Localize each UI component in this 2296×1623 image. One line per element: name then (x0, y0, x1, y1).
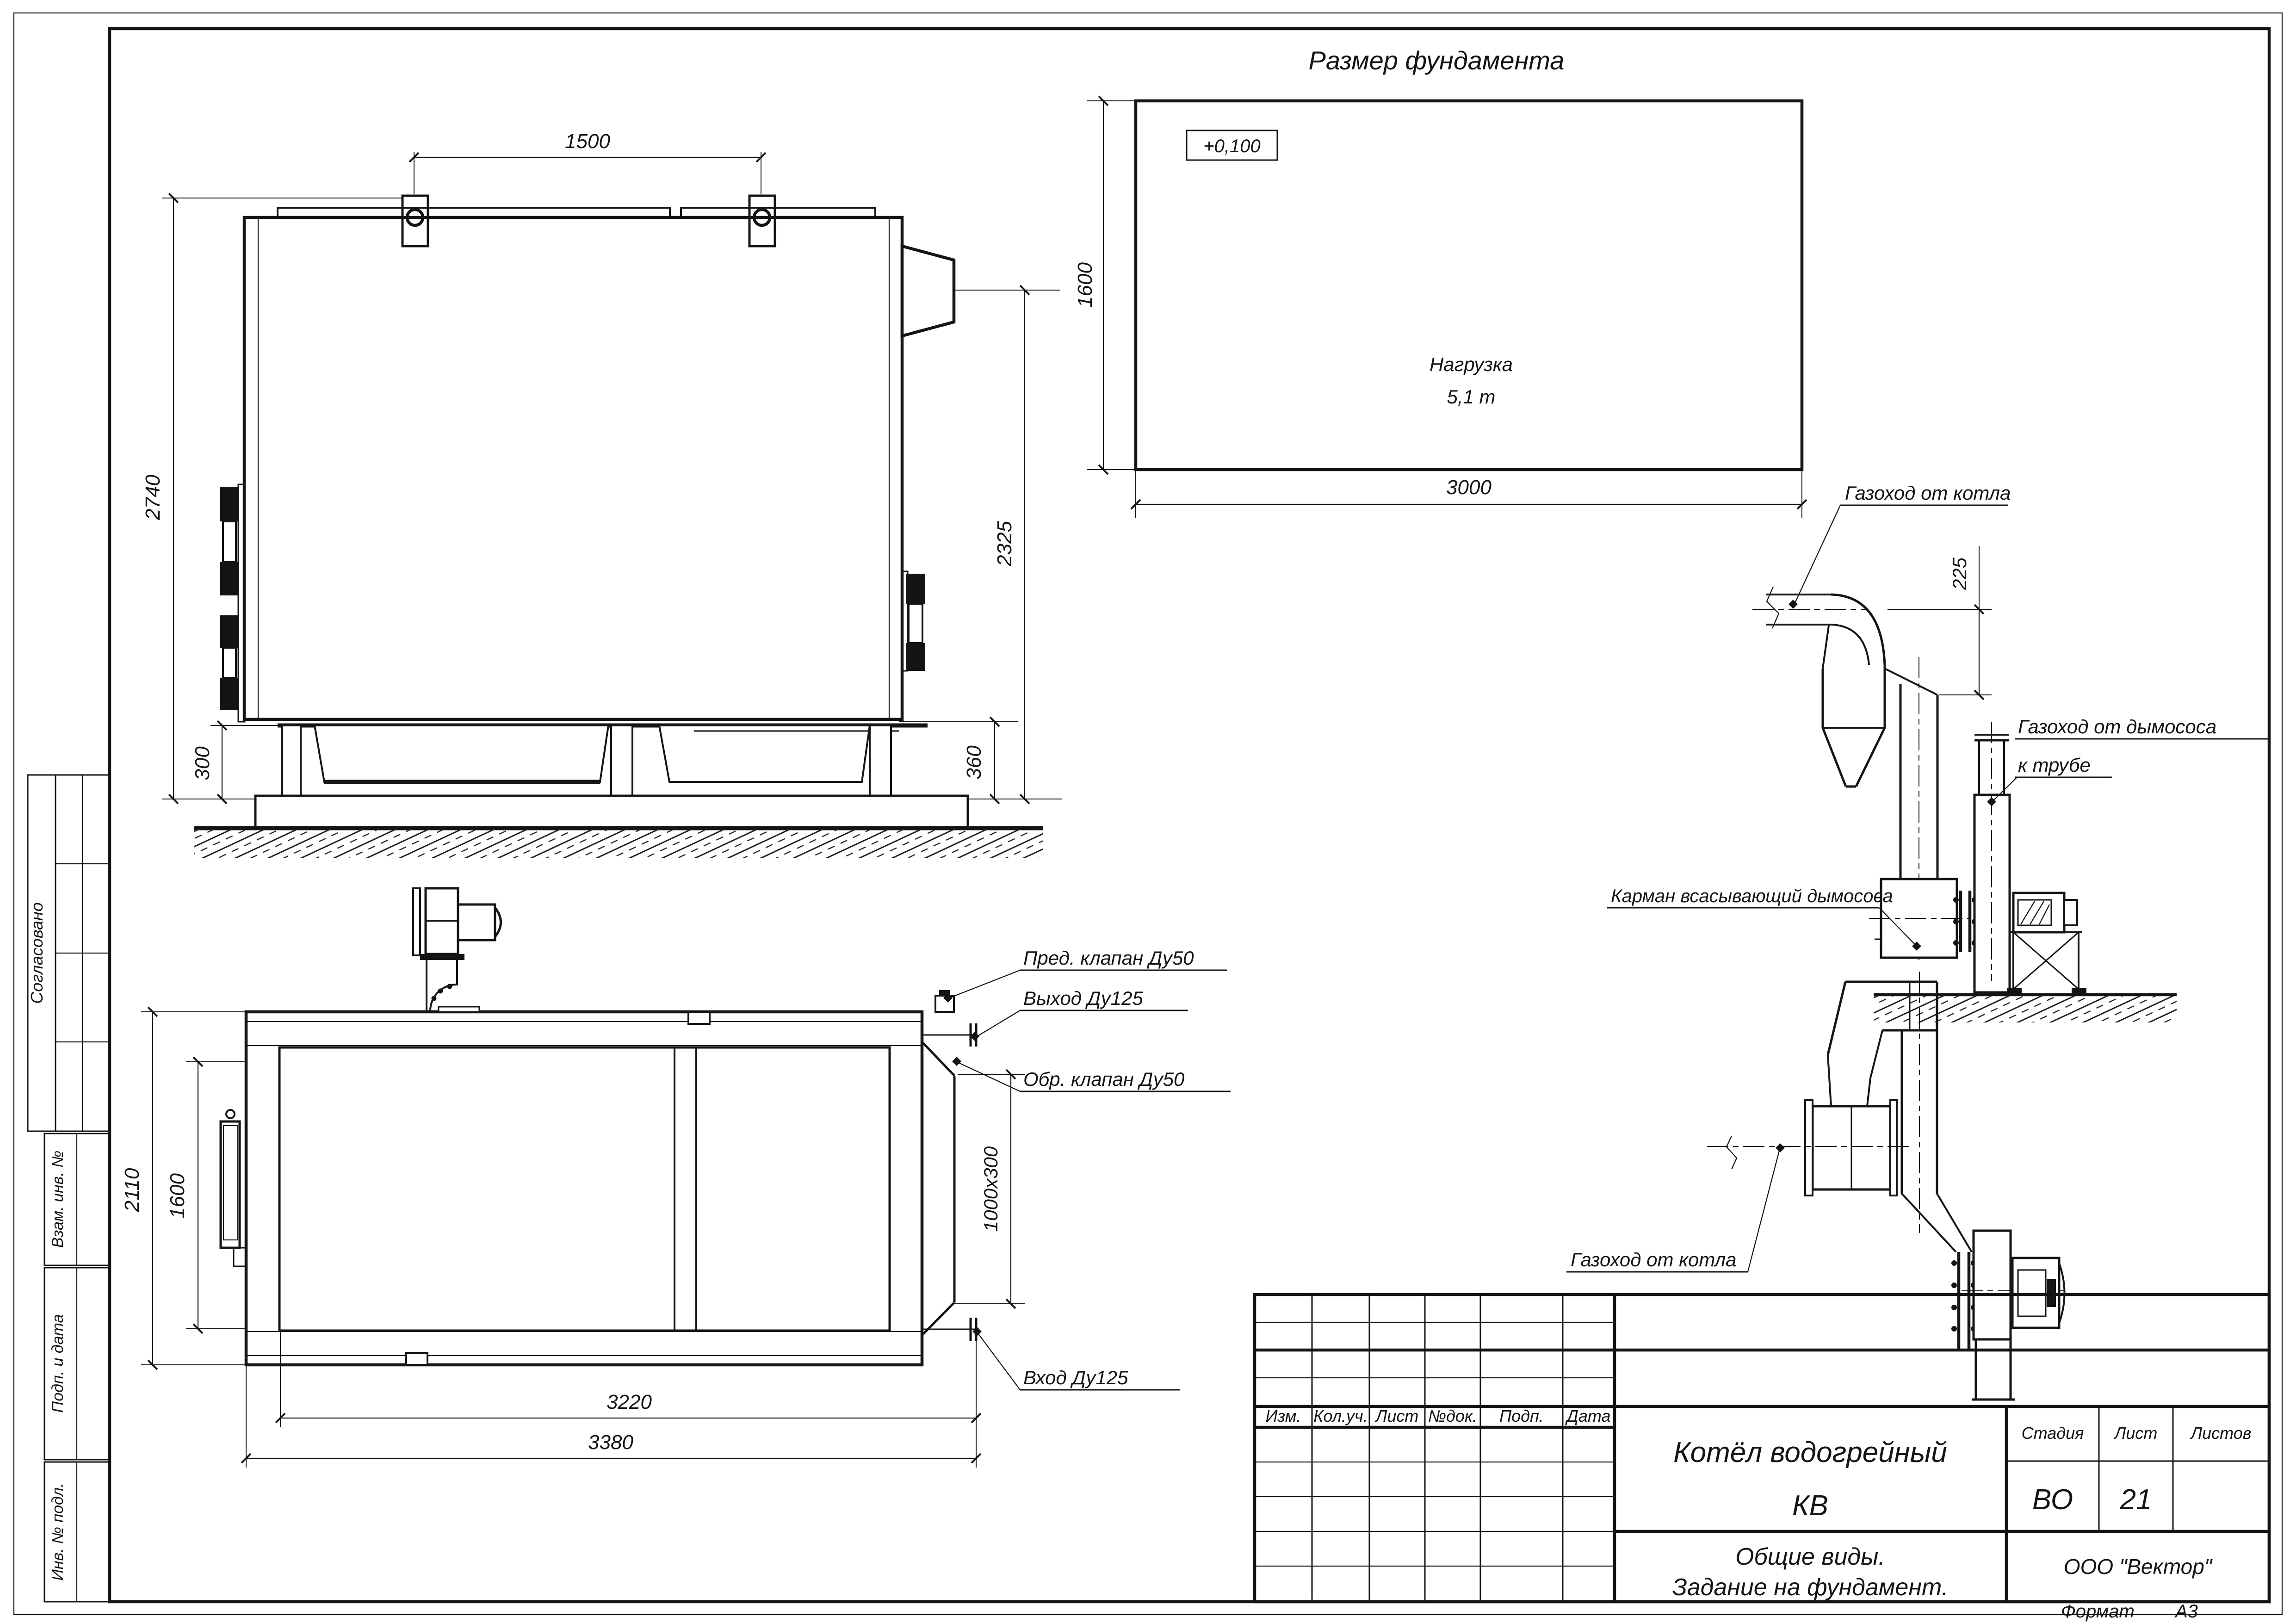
rear-flange (902, 571, 925, 671)
gas-duct-plan: Газоход от котла (1566, 972, 2070, 1406)
plan-dim-length-inner: 3220 (606, 1391, 652, 1413)
foundation-dim-height: 1600 (1074, 262, 1096, 308)
plan-dim-duct: 1000х300 (980, 1146, 1002, 1232)
front-flange-plan (221, 1110, 246, 1266)
rev-header-izm: Изм. (1266, 1406, 1301, 1425)
flue-outlet (902, 246, 954, 336)
plan-dim-width-total: 2110 (121, 1168, 143, 1212)
plan-outline (246, 1012, 922, 1365)
stamp-replace-inv-label: Взам. инв. № (49, 1151, 67, 1248)
side-dim-frame-left: 300 (191, 746, 214, 781)
side-dim-flue: 2325 (993, 521, 1016, 567)
load-value: 5,1 т (1447, 386, 1495, 408)
callout-inlet: Вход Ду125 (972, 1327, 1180, 1390)
lifting-lug (402, 196, 428, 246)
stage-label: Стадия (2022, 1424, 2084, 1443)
load-label: Нагрузка (1430, 353, 1513, 375)
rev-header-list: Лист (1375, 1406, 1419, 1425)
svg-text:к трубе: к трубе (2018, 754, 2091, 776)
sheets-label: Листов (2190, 1424, 2251, 1443)
svg-text:Обр. клапан Ду50: Обр. клапан Ду50 (1023, 1068, 1185, 1090)
callout-outlet: Выход Ду125 (970, 987, 1188, 1041)
elevation-mark: +0,100 (1203, 136, 1260, 156)
format-label: Формат (2061, 1601, 2135, 1622)
side-dim-height: 2740 (142, 475, 164, 520)
foundation-title: Размер фундамента (1309, 46, 1565, 75)
smoke-fan-plan (413, 888, 501, 1012)
cyclone (1823, 595, 1885, 787)
side-dim-lugs: 1500 (565, 130, 610, 153)
svg-text:Газоход от дымососа: Газоход от дымососа (2018, 716, 2216, 737)
callout-to-stack: Газоход от дымососа к трубе (1987, 716, 2271, 806)
drawing-sheet: Формат А3 Согласовано Взам. инв. № Подп.… (0, 0, 2296, 1623)
front-flanges (220, 484, 245, 722)
company: ООО "Вектор" (2064, 1555, 2213, 1579)
smoke-fan-plan-detail (1951, 1231, 2070, 1406)
svg-text:Пред. клапан Ду50: Пред. клапан Ду50 (1023, 947, 1194, 969)
stamp-sign-date-label: Подп. и дата (49, 1314, 67, 1413)
svg-text:Выход Ду125: Выход Ду125 (1023, 987, 1143, 1009)
callout-flue-from-boiler-plan: Газоход от котла (1566, 1143, 1785, 1272)
rev-header-podp: Подп. (1499, 1406, 1544, 1425)
title-block: Изм. Кол.уч. Лист №док. Подп. Дата Стади… (1255, 1295, 2269, 1602)
stamp-inv-orig: Инв. № подл. (44, 1462, 110, 1602)
foundation-plan: Размер фундамента +0,100 Нагрузка 5,1 т … (1074, 46, 1802, 518)
duct-dim-offset: 225 (1949, 557, 1970, 590)
doc-name-line1: Котёл водогрейный (1673, 1437, 1947, 1468)
support-frame (255, 725, 968, 828)
plan-dim-width-inner: 1600 (166, 1173, 189, 1219)
boiler-side-view: 1500 (142, 130, 1062, 858)
format-value: А3 (2174, 1601, 2198, 1622)
gas-duct-elevation: Газоход от котла 225 Карман всасывающий … (1607, 482, 2271, 1022)
stage-value: ВО (2032, 1484, 2073, 1516)
svg-text:Газоход от котла: Газоход от котла (1571, 1249, 1736, 1270)
stamp-approved: Согласовано (27, 775, 110, 1131)
doc-type-line1: Общие виды. (1735, 1543, 1885, 1570)
svg-text:Вход Ду125: Вход Ду125 (1023, 1367, 1128, 1388)
plan-dim-length-total: 3380 (588, 1431, 633, 1454)
rev-header-doc: №док. (1428, 1406, 1477, 1425)
margin-stamps: Согласовано Взам. инв. № Подп. и дата Ин… (27, 775, 110, 1602)
svg-text:Газоход от котла: Газоход от котла (1845, 482, 2011, 504)
ground (194, 828, 1043, 858)
side-dim-frame-right: 360 (963, 745, 985, 780)
foundation-dim-width: 3000 (1446, 476, 1491, 499)
rev-header-data: Дата (1565, 1406, 1611, 1425)
doc-name-line2: КВ (1792, 1490, 1828, 1522)
stamp-sign-date: Подп. и дата (44, 1268, 110, 1460)
sheet-value: 21 (2120, 1484, 2152, 1516)
stamp-inv-orig-label: Инв. № подл. (49, 1483, 67, 1581)
doc-type-line2: Задание на фундамент. (1672, 1574, 1948, 1601)
lifting-lug (749, 196, 775, 246)
callout-flue-from-boiler: Газоход от котла (1789, 482, 2011, 609)
boiler-body (244, 217, 902, 719)
flue-cylinder-plan (1707, 1100, 1911, 1196)
sheet-label: Лист (2114, 1424, 2158, 1443)
plan-fittings (922, 990, 977, 1341)
stamp-approved-label: Согласовано (27, 902, 46, 1004)
stamp-replace-inv: Взам. инв. № (44, 1134, 110, 1265)
rev-header-koluch: Кол.уч. (1313, 1406, 1368, 1425)
boiler-plan-view: 1000х300 Пред. клапан Ду50 Выход Ду125 О… (121, 888, 1231, 1468)
svg-text:Карман всасывающий дымососа: Карман всасывающий дымососа (1611, 886, 1893, 906)
